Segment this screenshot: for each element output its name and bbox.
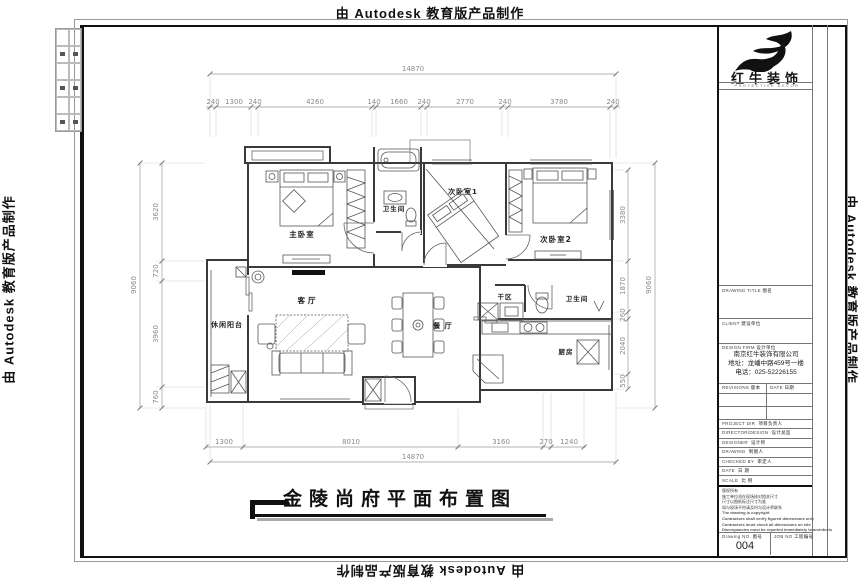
dim-label: 3380: [619, 206, 627, 224]
date-col-label-en: DATE: [770, 385, 783, 390]
dim-label: 240: [206, 98, 219, 106]
dim-label: 1240: [560, 438, 578, 446]
title-block-col-line-2: [827, 25, 828, 556]
company-phone: 电话：025-52226155: [719, 368, 813, 377]
room-label-balcony: 休闲阳台: [210, 320, 243, 329]
dim-label: 240: [606, 98, 619, 106]
dim-label: 720: [152, 264, 160, 277]
title-bracket-icon: [250, 500, 288, 505]
dim-label: 1300: [225, 98, 243, 106]
revisions-label-en: REVISIONS: [722, 385, 749, 390]
dim-label: 3960: [152, 325, 160, 343]
room-label-master: 主卧室: [289, 229, 315, 239]
job-no-label: JOB NO 工程编号: [774, 534, 813, 540]
title-block-col-line: [812, 25, 813, 556]
watermark-bottom: 由 Autodesk 教育版产品制作: [320, 562, 540, 580]
dim-label: 3620: [152, 203, 160, 221]
company-name: 南京红牛装饰有限公司: [719, 350, 813, 359]
dim-label: 2770: [456, 98, 474, 106]
row-director: DIRECTOR/DESIGN 设计总监: [722, 430, 791, 436]
drawing-title-label-en: DRAWING TITLE: [722, 288, 761, 293]
drawing-title-row: DRAWING TITLE 图名: [722, 288, 772, 294]
dim-label: 140: [367, 98, 380, 106]
dim-label: 2040: [619, 337, 627, 355]
row-designer: DESIGNER 设计师: [722, 440, 765, 446]
dim-label: 3780: [550, 98, 568, 106]
fold-mark-cell: [56, 80, 69, 97]
revisions-header: REVISIONS 版本: [722, 385, 760, 391]
brand-subtitle: PROTECTIVE DECOR: [719, 83, 815, 88]
title-underline-shadow: [257, 518, 553, 521]
dim-label: 8010: [342, 438, 360, 446]
fold-mark-cell: [56, 29, 69, 46]
fold-mark-cell: [56, 114, 69, 131]
room-label-bath1: 卫生间: [383, 204, 406, 213]
dim-label: 1660: [390, 98, 408, 106]
watermark-left: 由 Autodesk 教育版产品制作: [0, 180, 18, 400]
fold-mark-cell: [56, 46, 69, 63]
client-label-en: CLIENT: [722, 321, 740, 326]
dim-label: 1870: [619, 277, 627, 295]
room-label-bath2: 卫生间: [566, 294, 589, 303]
copyright-notes: 版权所有 施工单位须在现场核对相关尺寸 尺寸以图纸标注尺寸为准 如与现场不符请及…: [722, 488, 832, 533]
dim-label: 240: [248, 98, 261, 106]
dim-label: 4260: [306, 98, 324, 106]
room-label-bed1: 次卧室1: [448, 187, 478, 196]
row-scale: SCALE 比 例: [722, 478, 753, 484]
dim-label: 270: [539, 438, 552, 446]
dim-label: 3160: [492, 438, 510, 446]
dim-bottom-total: 14870: [402, 453, 424, 461]
dim-label: 240: [498, 98, 511, 106]
row-date: DATE 日 期: [722, 468, 749, 474]
client-row: CLIENT 建设单位: [722, 321, 761, 327]
room-label-living: 客厅: [297, 295, 319, 305]
fold-mark-cell: [56, 97, 69, 114]
drawing-title-label-zh: 图名: [762, 288, 772, 293]
room-label-dry: 干区: [498, 293, 513, 301]
sheet-title: 金陵尚府平面布置图: [283, 484, 517, 511]
drawing-number: 004: [722, 540, 768, 552]
company-address: 地址：龙蟠中路459号一楼: [719, 359, 813, 368]
title-underline: [250, 514, 546, 517]
row-drawing: DRAWING 制图人: [722, 449, 763, 455]
fold-mark-cell: [56, 63, 69, 80]
room-label-dining: 餐 厅: [432, 321, 452, 330]
cad-sheet: 由 Autodesk 教育版产品制作 由 Autodesk 教育版产品制作 由 …: [0, 0, 860, 580]
room-label-kitchen: 厨房: [559, 347, 574, 356]
row-project-dir: PROJECT DIR 项目负责人: [722, 421, 782, 427]
dim-left-total: 9060: [130, 276, 138, 294]
client-label-zh: 建设单位: [741, 321, 760, 326]
redbull-logo-icon: [733, 30, 797, 72]
dim-label: 260: [619, 308, 627, 321]
room-label-bed2: 次卧室2: [540, 234, 572, 244]
date-col-header: DATE 日期: [770, 385, 794, 391]
dim-top-total: 14870: [402, 65, 424, 73]
fold-mark-strip: [55, 28, 82, 132]
dim-label: 240: [417, 98, 430, 106]
floor-plan: 主卧室 卫生间 次卧室1 次卧室2 客厅 餐 厅 休闲阳台 干区 卫生间 厨房 …: [80, 25, 718, 556]
revisions-label-zh: 版本: [751, 385, 761, 390]
dim-right-total: 9060: [645, 276, 653, 294]
date-col-label-zh: 日期: [784, 385, 794, 390]
row-checked: CHECKED BY 审定人: [722, 459, 772, 465]
dim-label: 1300: [215, 438, 233, 446]
dim-label: 760: [152, 390, 160, 403]
dim-label: 550: [619, 374, 627, 387]
